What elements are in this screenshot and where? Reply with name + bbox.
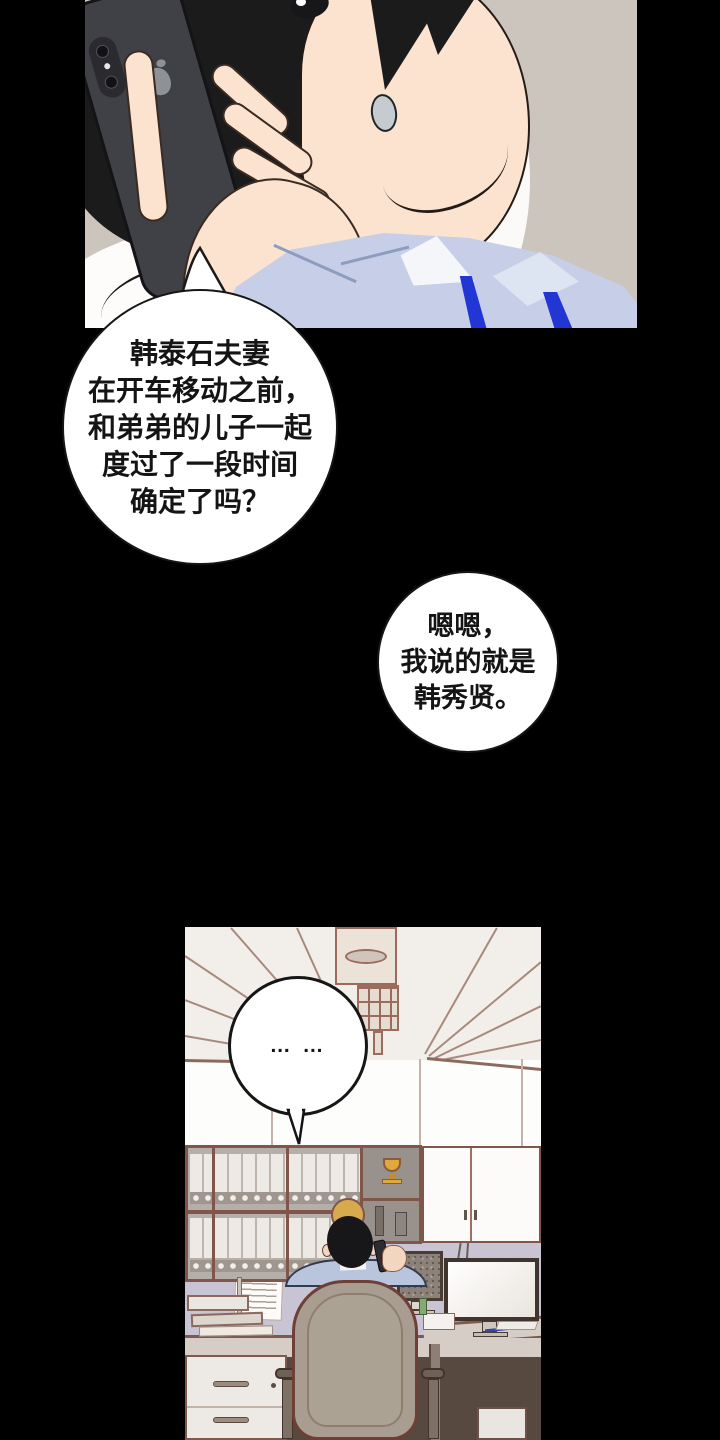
shelf-board — [363, 1198, 419, 1201]
bubble-text-line: 和弟弟的儿子一起 — [88, 409, 312, 446]
desk-paper — [495, 1321, 538, 1330]
chair-armrest-pad — [421, 1368, 445, 1379]
wall-cabinets — [422, 1146, 541, 1243]
binders-row — [190, 1218, 212, 1258]
bubble-text-line: 嗯嗯， — [428, 608, 509, 644]
drawer-handle — [213, 1417, 249, 1423]
cabinet-handle — [464, 1210, 467, 1220]
ceiling-line — [424, 928, 498, 1055]
award-column — [395, 1212, 407, 1236]
bubble-text-line: 韩泰石夫妻 — [130, 335, 270, 372]
chair-armrest-stem — [428, 1379, 439, 1439]
drawer-divider — [187, 1406, 285, 1408]
drawer-keyhole — [271, 1383, 276, 1388]
bubble-text-line: … … — [270, 1034, 327, 1058]
wall-partition-line — [521, 1059, 523, 1149]
panel-phone-call-closeup — [85, 0, 637, 328]
binders-row — [215, 1218, 286, 1258]
desk-bottle — [419, 1298, 427, 1315]
bubble-text-line: 在开车移动之前， — [88, 372, 312, 409]
bubble-text-line: 度过了一段时间 — [102, 446, 298, 483]
camera-lens-icon — [94, 43, 110, 59]
binders-row — [190, 1154, 212, 1192]
ceiling-fixture — [335, 927, 397, 985]
binder-ring-holes — [190, 1260, 212, 1272]
binders-row — [215, 1154, 286, 1192]
binders-row — [289, 1154, 360, 1192]
trophy-base — [382, 1179, 402, 1184]
monitor-base — [473, 1332, 508, 1337]
chair-seam — [307, 1293, 403, 1427]
cabinet-door-divider — [470, 1148, 472, 1241]
camera-lens-icon — [103, 74, 119, 90]
drawer-handle — [213, 1381, 249, 1387]
seated-man-head — [327, 1216, 373, 1268]
binder-ring-holes — [190, 1192, 212, 1204]
bubble-text-line: 韩秀贤。 — [414, 680, 522, 716]
stacked-book — [199, 1325, 273, 1336]
speech-bubble-silence: … … — [228, 976, 368, 1116]
wall-partition-line — [419, 1059, 421, 1149]
desk-box — [423, 1313, 455, 1330]
panel-office-scene — [185, 927, 541, 1440]
monitor-bright-screen — [444, 1258, 539, 1321]
ceiling-fixture-stem — [373, 1031, 383, 1055]
drawer-unit — [185, 1355, 287, 1440]
speech-bubble-tail — [283, 1108, 309, 1146]
camera-flash-icon — [104, 62, 111, 69]
gold-trophy-cup — [383, 1158, 401, 1172]
document-tray — [187, 1295, 249, 1311]
speech-bubble-question: 韩泰石夫妻 在开车移动之前， 和弟弟的儿子一起 度过了一段时间 确定了吗？ — [62, 289, 338, 565]
cabinet-handle — [474, 1210, 477, 1220]
speech-bubble-answer: 嗯嗯， 我说的就是 韩秀贤。 — [377, 571, 559, 753]
award-column — [375, 1206, 384, 1236]
bubble-text-line: 确定了吗？ — [130, 483, 270, 520]
small-cabinet — [477, 1407, 527, 1440]
webtoon-page: 韩泰石夫妻 在开车移动之前， 和弟弟的儿子一起 度过了一段时间 确定了吗？ 嗯嗯… — [0, 0, 720, 1440]
binder-ring-holes — [215, 1192, 286, 1204]
bubble-text-line: 我说的就是 — [401, 644, 536, 680]
office-chair-back — [292, 1280, 418, 1440]
binder-ring-holes — [215, 1260, 286, 1272]
ceiling-lamp-oval — [345, 949, 387, 964]
